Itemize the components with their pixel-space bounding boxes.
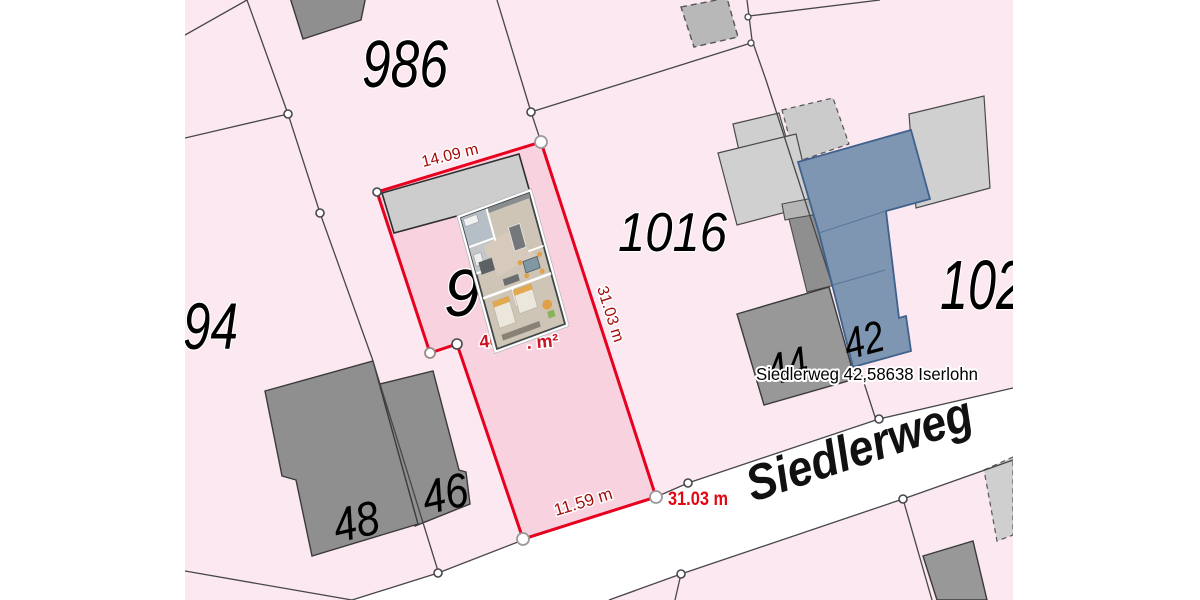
svg-text:986: 986 (362, 27, 449, 102)
svg-text:94: 94 (183, 289, 238, 363)
svg-text:1016: 1016 (618, 201, 727, 263)
svg-text:31.03 m: 31.03 m (668, 489, 728, 510)
svg-text:102: 102 (940, 246, 1024, 324)
svg-text:Siedlerweg 42,58638 Iserlohn: Siedlerweg 42,58638 Iserlohn (756, 364, 978, 384)
